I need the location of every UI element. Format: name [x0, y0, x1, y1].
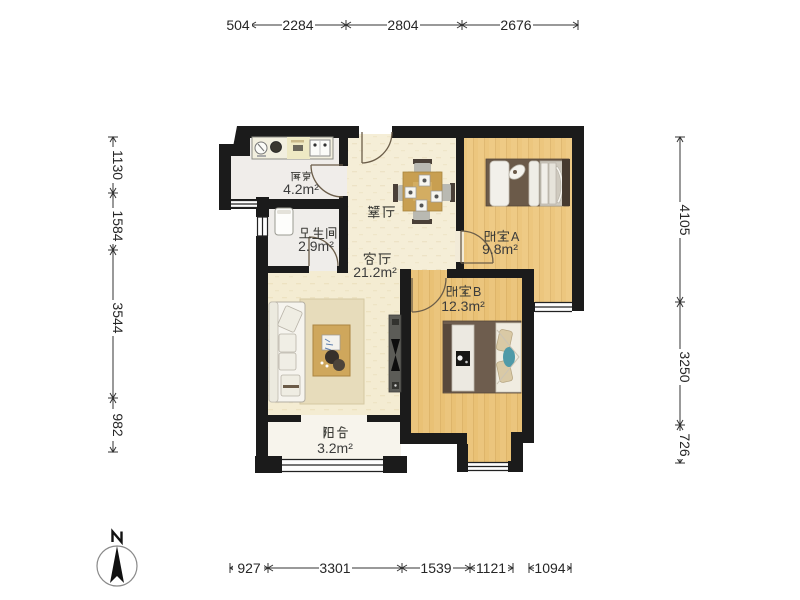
svg-text:21.2m²: 21.2m²: [353, 264, 397, 280]
svg-text:1539: 1539: [420, 560, 451, 576]
svg-text:927: 927: [237, 560, 261, 576]
svg-text:982: 982: [110, 413, 126, 437]
svg-text:1584: 1584: [110, 210, 126, 241]
svg-text:504: 504: [226, 17, 250, 33]
svg-text:2676: 2676: [500, 17, 531, 33]
svg-text:1094: 1094: [534, 560, 565, 576]
svg-text:B: B: [473, 285, 481, 299]
svg-text:3.2m²: 3.2m²: [317, 440, 353, 456]
svg-text:4.2m²: 4.2m²: [283, 181, 319, 197]
svg-text:2804: 2804: [387, 17, 418, 33]
svg-text:12.3m²: 12.3m²: [441, 298, 485, 314]
svg-text:9.8m²: 9.8m²: [482, 241, 518, 257]
svg-text:2284: 2284: [282, 17, 313, 33]
svg-text:3301: 3301: [319, 560, 350, 576]
svg-text:4105: 4105: [677, 204, 693, 235]
svg-text:2.9m²: 2.9m²: [298, 238, 334, 254]
svg-text:1121: 1121: [476, 560, 506, 576]
svg-text:3544: 3544: [110, 302, 126, 333]
svg-text:1130: 1130: [110, 150, 126, 180]
svg-text:3250: 3250: [677, 351, 693, 382]
svg-text:726: 726: [677, 433, 693, 457]
